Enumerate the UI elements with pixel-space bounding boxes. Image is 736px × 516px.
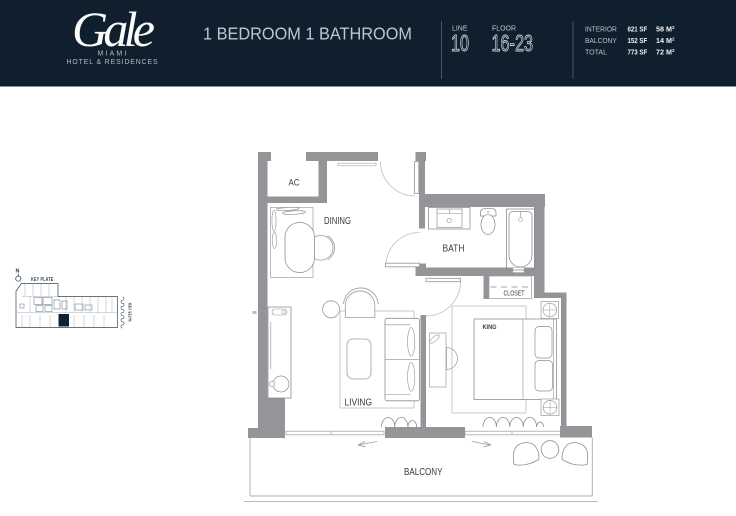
svg-text:1 BEDROOM 1 BATHROOM: 1 BEDROOM 1 BATHROOM — [203, 24, 412, 44]
svg-text:INTERIOR: INTERIOR — [585, 24, 617, 33]
svg-text:BALCONY: BALCONY — [404, 467, 443, 478]
svg-text:WATER VIEW: WATER VIEW — [128, 303, 134, 322]
svg-text:152 SF: 152 SF — [628, 36, 648, 45]
svg-text:AC: AC — [289, 178, 300, 188]
svg-text:TOTAL: TOTAL — [585, 47, 607, 56]
svg-text:LIVING: LIVING — [345, 398, 373, 409]
svg-text:HOTEL & RESIDENCES: HOTEL & RESIDENCES — [67, 57, 159, 66]
svg-text:16-23: 16-23 — [492, 30, 534, 56]
svg-text:KING: KING — [483, 324, 497, 331]
svg-text:N: N — [16, 269, 20, 275]
svg-text:CLOSET: CLOSET — [504, 291, 526, 298]
svg-text:KEY PLATE: KEY PLATE — [31, 277, 54, 283]
svg-text:10: 10 — [451, 30, 469, 56]
svg-text:Gale: Gale — [72, 1, 155, 57]
svg-text:773 SF: 773 SF — [628, 47, 648, 56]
svg-text:BATH: BATH — [443, 244, 465, 255]
svg-text:BALCONY: BALCONY — [585, 36, 617, 45]
svg-text:DINING: DINING — [324, 216, 351, 227]
svg-text:621 SF: 621 SF — [628, 24, 648, 33]
